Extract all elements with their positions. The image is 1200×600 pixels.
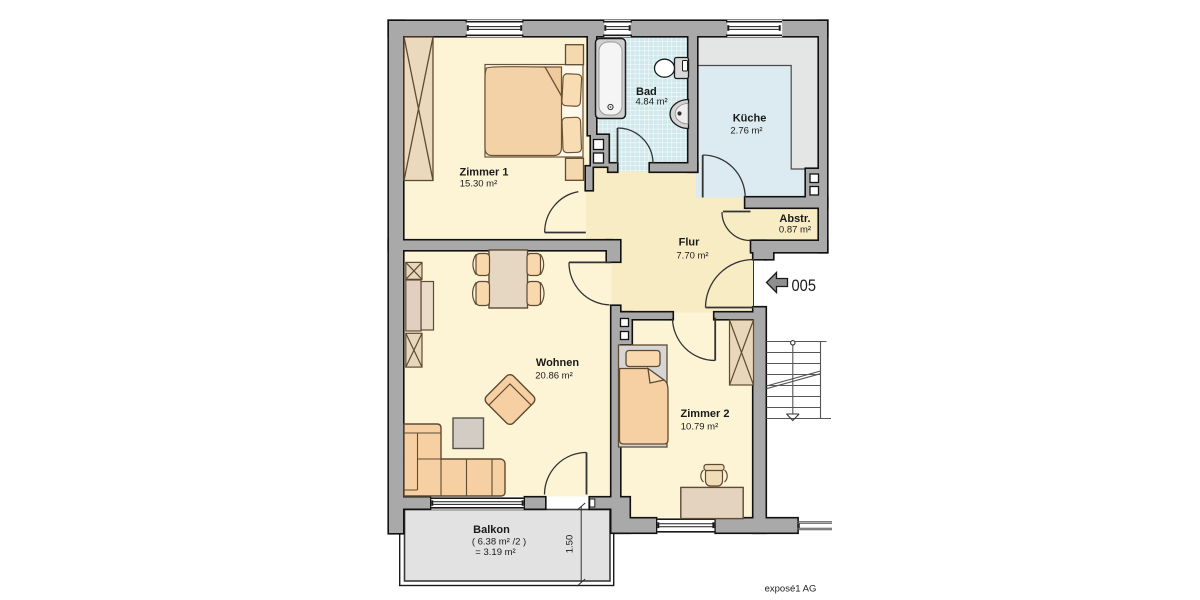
svg-text:005: 005 [792, 276, 817, 295]
svg-text:1.50: 1.50 [565, 535, 576, 554]
svg-text:0.87 m²: 0.87 m² [779, 225, 811, 236]
svg-text:Abstr.: Abstr. [779, 213, 810, 225]
svg-text:exposé1 AG: exposé1 AG [765, 584, 817, 595]
svg-text:Zimmer 1: Zimmer 1 [460, 167, 509, 179]
svg-text:Balkon: Balkon [473, 524, 510, 536]
svg-text:Wohnen: Wohnen [536, 357, 579, 369]
svg-text:10.79 m²: 10.79 m² [681, 422, 719, 433]
svg-text:Flur: Flur [679, 236, 700, 248]
svg-text:20.86 m²: 20.86 m² [535, 371, 573, 382]
svg-text:15.30 m²: 15.30 m² [460, 179, 498, 190]
svg-text:2.76 m²: 2.76 m² [730, 126, 762, 137]
svg-text:7.70 m²: 7.70 m² [676, 251, 708, 262]
svg-text:Zimmer 2: Zimmer 2 [681, 408, 730, 420]
svg-text:( 6.38 m² /2 ): ( 6.38 m² /2 ) [472, 537, 526, 548]
svg-text:4.84 m²: 4.84 m² [636, 97, 668, 108]
svg-text:= 3.19 m²: = 3.19 m² [475, 547, 515, 558]
svg-text:Küche: Küche [733, 113, 767, 125]
